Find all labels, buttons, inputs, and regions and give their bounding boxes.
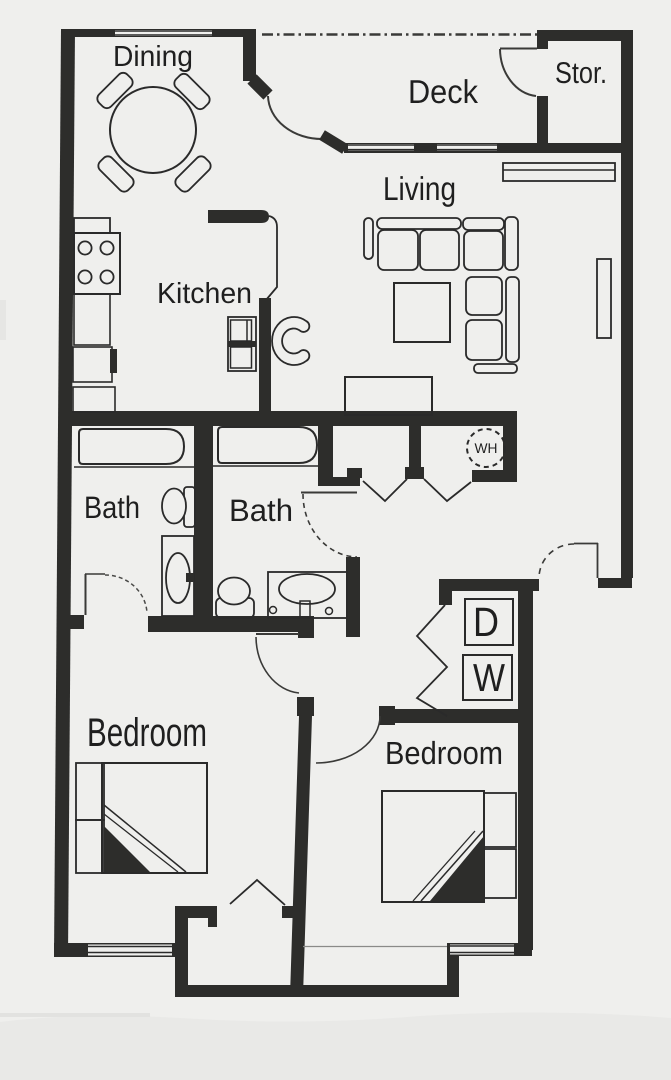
svg-text:Bedroom: Bedroom [385,735,503,771]
svg-text:Dining: Dining [113,41,193,73]
svg-text:Bath: Bath [84,490,140,525]
svg-text:D: D [473,599,499,645]
svg-text:WH: WH [475,440,498,456]
svg-text:Deck: Deck [408,73,478,110]
svg-text:Kitchen: Kitchen [157,278,252,310]
svg-text:Stor.: Stor. [555,57,607,90]
svg-text:Bedroom: Bedroom [87,711,207,755]
svg-text:Bath: Bath [229,493,293,528]
svg-text:W: W [473,657,505,700]
svg-text:Living: Living [383,170,456,207]
